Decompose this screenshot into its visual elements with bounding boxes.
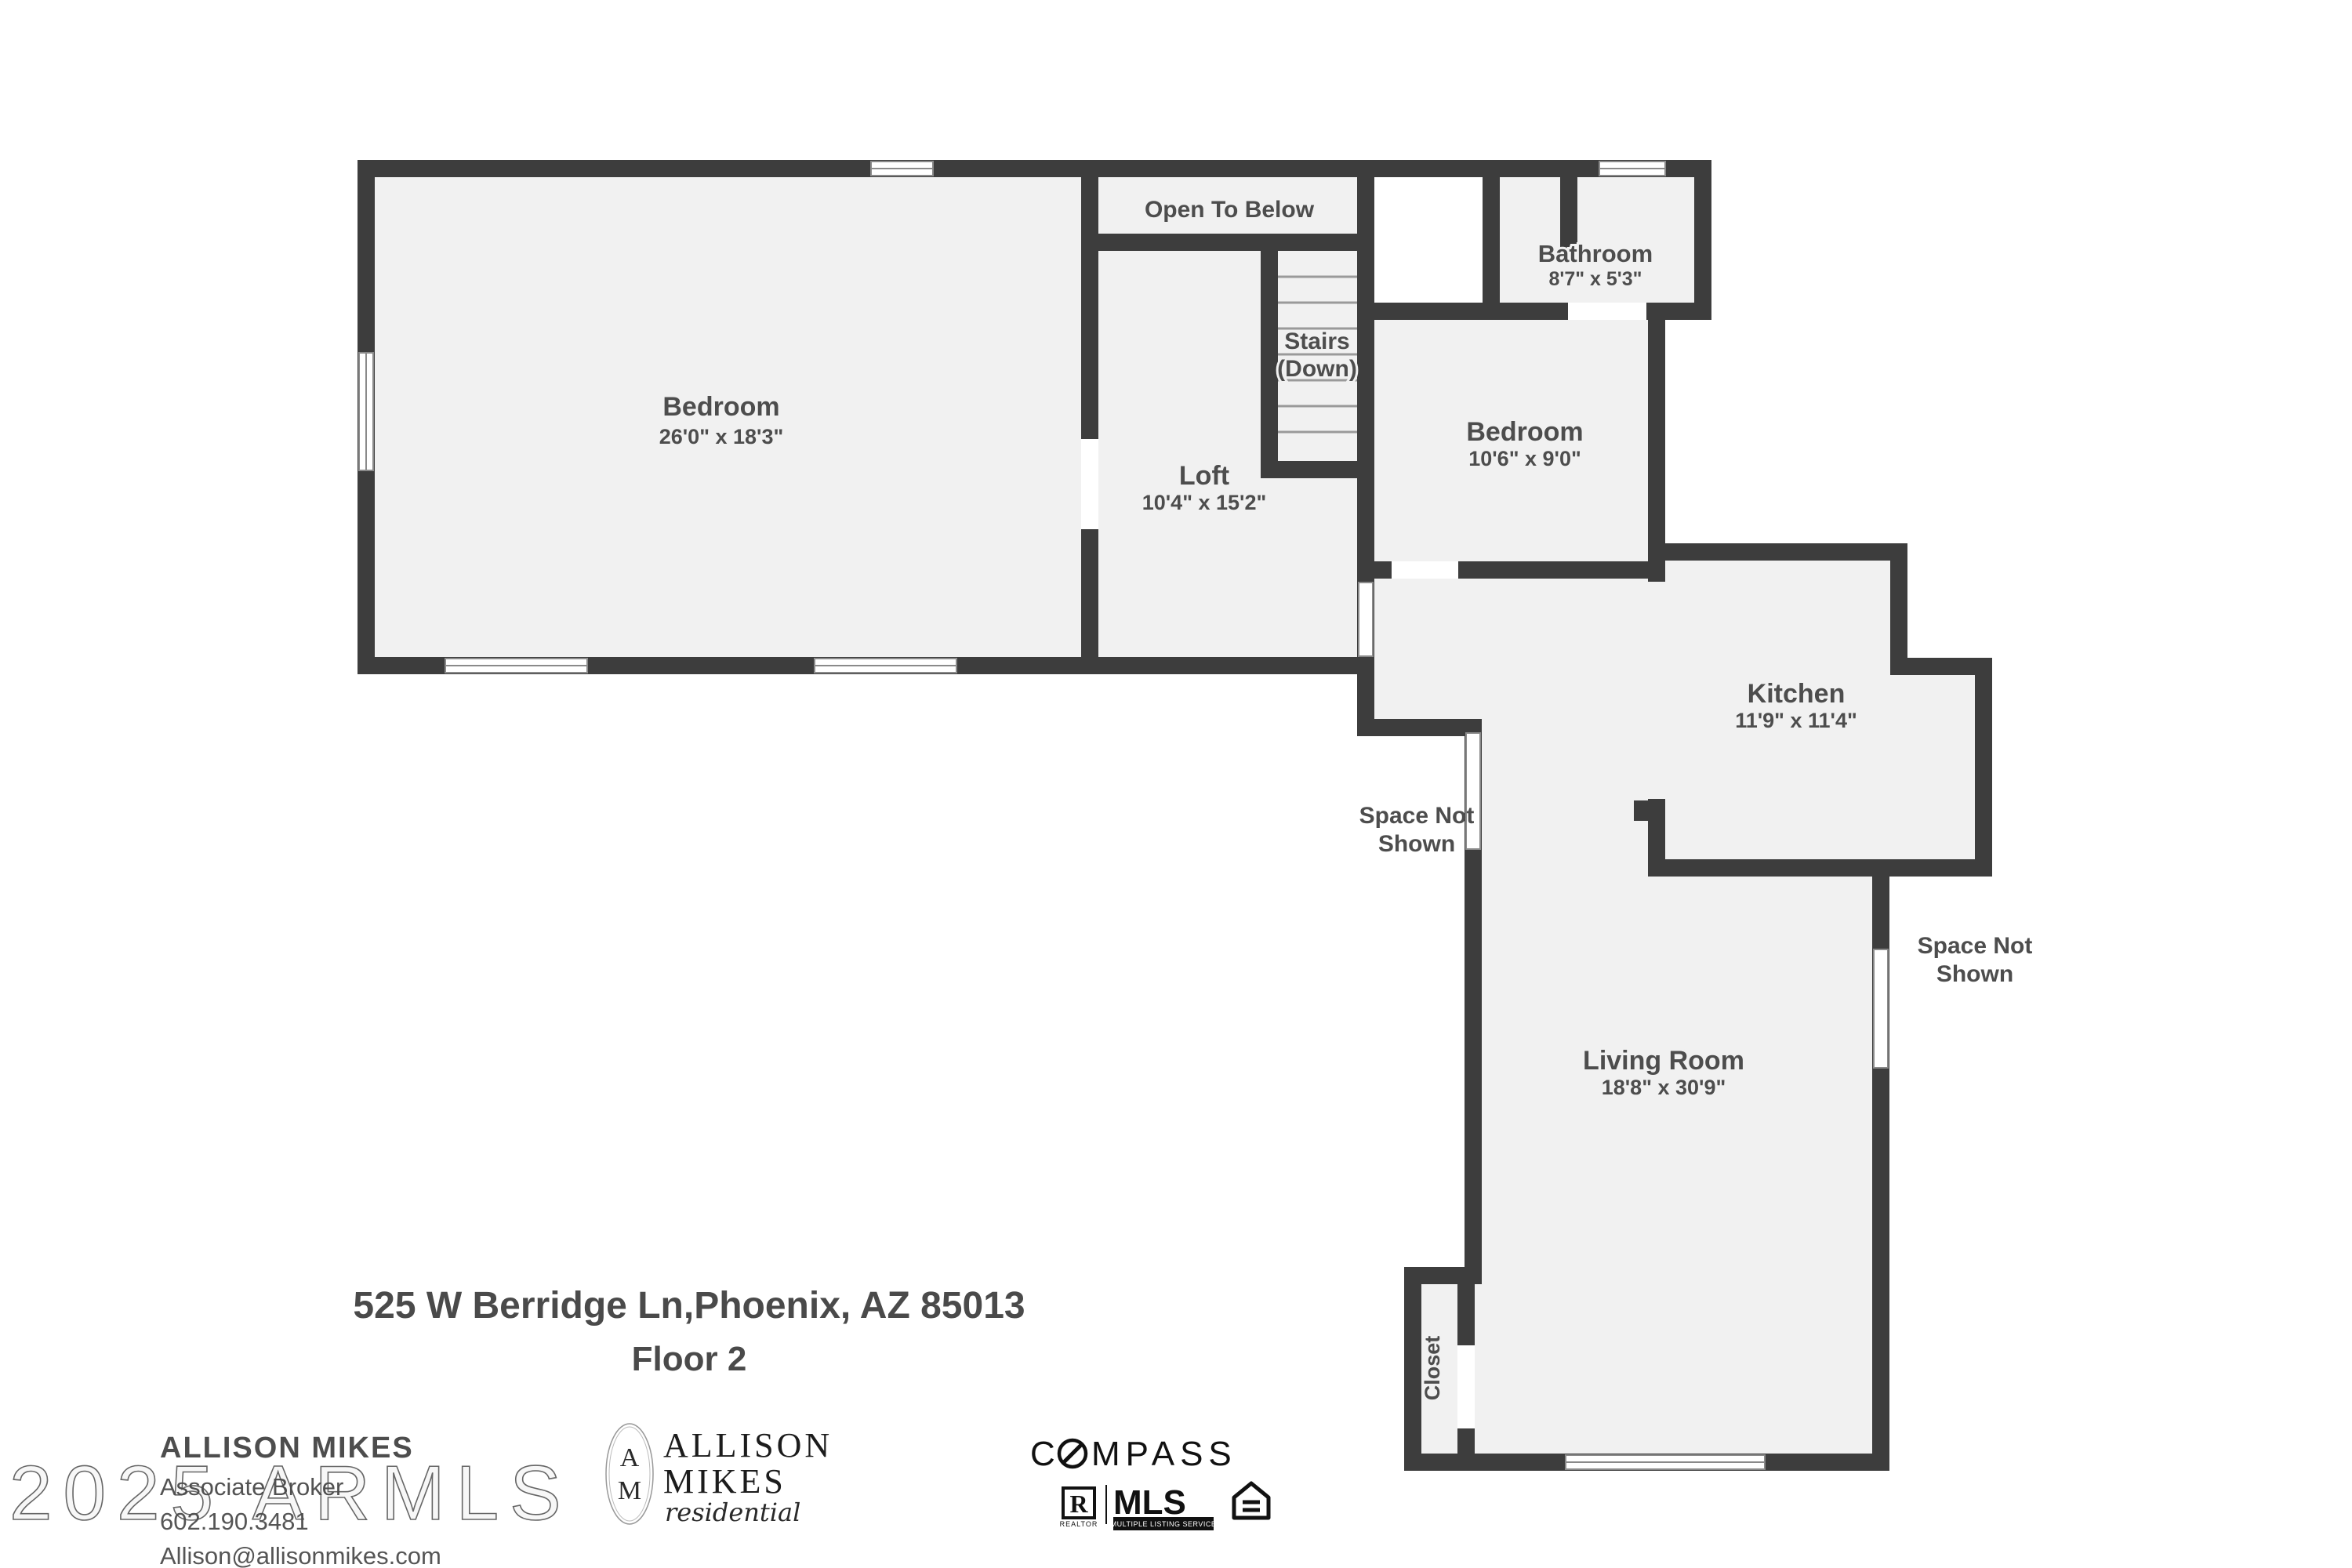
am-wordmark: ALLISON MIKES residential [663, 1426, 833, 1527]
label-stairs: Stairs [1284, 328, 1349, 354]
compass-logo: C MPASS [1030, 1436, 1237, 1473]
armls-watermark: 2025 ARMLS [9, 1449, 572, 1537]
door-bedroom-loft [1081, 439, 1098, 529]
mls-subtext: MULTIPLE LISTING SERVICE [1111, 1520, 1217, 1528]
window-living-right [1874, 949, 1888, 1068]
property-address: 525 W Berridge Ln,Phoenix, AZ 85013 Floo… [0, 1287, 1378, 1377]
label-space-not-shown-left-1: Space Not [1359, 803, 1475, 829]
mls-logo: MLS MULTIPLE LISTING SERVICE [1111, 1483, 1217, 1530]
compass-o-icon [1059, 1440, 1086, 1467]
window-living-left [1466, 733, 1480, 849]
svg-text:A: A [620, 1443, 640, 1472]
agent-email: Allison@allisonmikes.com [160, 1542, 441, 1568]
label-kitchen: Kitchen [1748, 679, 1846, 709]
floor-bedroom2-hall [1374, 303, 1665, 736]
am-monogram-icon: A M [606, 1424, 653, 1524]
dims-bathroom: 8'7" x 5'3" [1548, 268, 1642, 290]
dims-kitchen: 11'9" x 11'4" [1735, 709, 1857, 732]
svg-text:MLS: MLS [1113, 1483, 1186, 1522]
label-stairs-down: (Down) [1277, 356, 1357, 382]
dims-bedroom-main: 26'0" x 18'3" [659, 425, 784, 448]
floor-plan-page: Bedroom 26'0" x 18'3" Open To Below Stai… [0, 0, 2352, 1568]
label-space-not-shown-right-1: Space Not [1918, 933, 2033, 959]
compass-mls-block: C MPASS R REALTOR MLS MULTIPLE LISTING S… [1025, 1436, 1292, 1538]
label-open-to-below: Open To Below [1145, 197, 1315, 223]
allison-mikes-logo: A M ALLISON MIKES residential [604, 1421, 933, 1530]
address-line: 525 W Berridge Ln,Phoenix, AZ 85013 [0, 1287, 1378, 1325]
svg-text:ALLISON: ALLISON [663, 1426, 833, 1465]
svg-text:MIKES: MIKES [663, 1462, 786, 1501]
door-bathroom [1568, 303, 1646, 320]
door-bedroom2 [1392, 561, 1458, 579]
svg-text:M: M [618, 1476, 641, 1505]
equal-housing-icon [1234, 1483, 1269, 1518]
svg-text:residential: residential [665, 1497, 800, 1527]
compass-prefix: C [1030, 1436, 1061, 1473]
label-space-not-shown-left-2: Shown [1378, 831, 1455, 857]
label-bedroom-second: Bedroom [1466, 417, 1583, 447]
label-living-room: Living Room [1583, 1046, 1744, 1076]
label-closet: Closet [1421, 1336, 1444, 1401]
dims-living-room: 18'8" x 30'9" [1602, 1076, 1726, 1099]
floor-areas [358, 160, 1992, 1471]
window-loft-hall [1359, 583, 1373, 656]
label-loft: Loft [1179, 461, 1229, 491]
realtor-label: REALTOR [1060, 1520, 1098, 1528]
dims-loft: 10'4" x 15'2" [1142, 491, 1267, 514]
label-space-not-shown-right-2: Shown [1936, 961, 2013, 987]
label-bedroom-main: Bedroom [662, 392, 779, 422]
label-bathroom: Bathroom [1538, 240, 1653, 267]
realtor-icon: R REALTOR [1060, 1488, 1098, 1528]
door-closet [1457, 1345, 1475, 1428]
compass-suffix: MPASS [1091, 1436, 1237, 1473]
dims-bedroom-second: 10'6" x 9'0" [1468, 447, 1581, 470]
svg-text:R: R [1069, 1490, 1088, 1518]
floor-number: Floor 2 [0, 1342, 1378, 1377]
